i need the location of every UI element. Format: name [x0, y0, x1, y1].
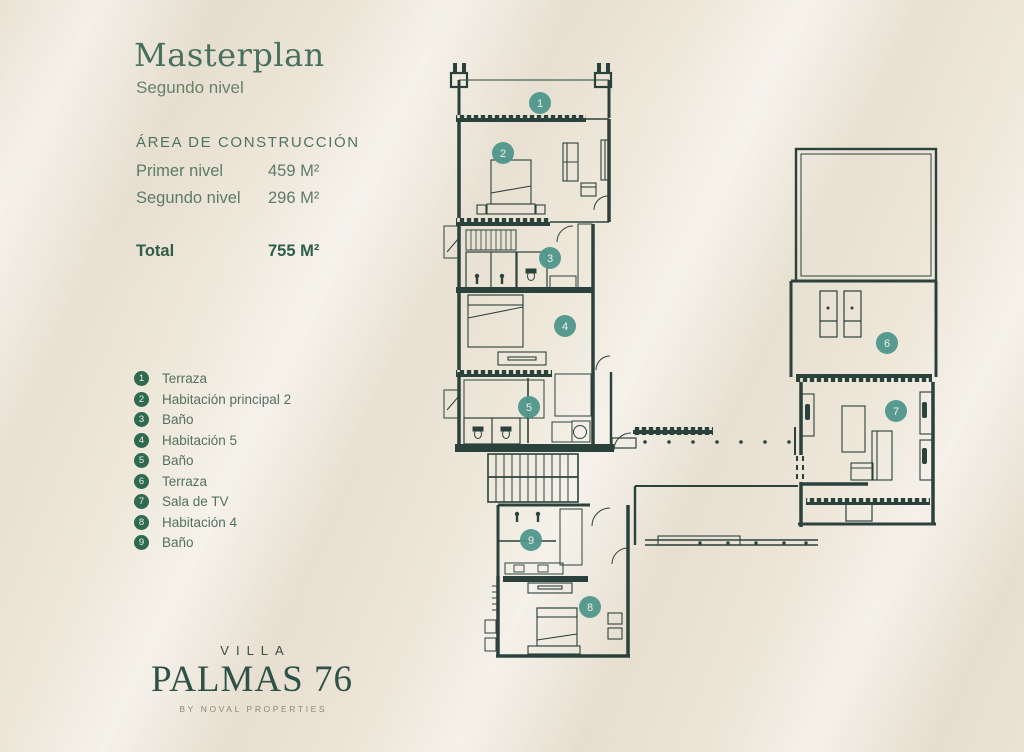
legend-number-badge: 4	[134, 433, 149, 448]
bed-room-2	[477, 160, 545, 214]
legend-item-label: Baño	[162, 535, 194, 550]
room-marker-number: 7	[893, 406, 899, 418]
sofa-room-2	[563, 143, 596, 196]
room-8	[485, 505, 630, 656]
wall-band	[455, 444, 614, 452]
room-marker-number: 9	[528, 535, 534, 547]
legend-number-badge: 3	[134, 412, 149, 427]
construction-row: Segundo nivel296 M²	[136, 189, 356, 216]
legend-item-label: Habitación 4	[162, 515, 237, 530]
construction-heading: ÁREA DE CONSTRUCCIÓN	[136, 134, 360, 151]
legend-item-label: Baño	[162, 453, 194, 468]
legend-item-label: Terraza	[162, 474, 207, 489]
legend-item: 5Baño	[134, 453, 291, 468]
legend-item: 7Sala de TV	[134, 494, 291, 509]
door-arc	[612, 548, 628, 564]
sala-furniture	[802, 392, 932, 480]
staircase	[488, 454, 578, 502]
roof-void	[796, 149, 936, 281]
legend-item: 3Baño	[134, 412, 291, 427]
legend-number-badge: 9	[134, 535, 149, 550]
door-arc	[557, 226, 573, 242]
door-threshold	[846, 504, 872, 521]
total-value: 755 M²	[268, 242, 319, 261]
construction-row-label: Segundo nivel	[136, 189, 268, 216]
page-title: Masterplan	[134, 36, 325, 74]
room-marker-number: 1	[537, 98, 543, 110]
legend-number-badge: 6	[134, 474, 149, 489]
legend-item: 2Habitación principal 2	[134, 392, 291, 407]
legend-item-label: Baño	[162, 412, 194, 427]
room-marker-number: 8	[587, 602, 593, 614]
legend-list: 1Terraza2Habitación principal 23Baño4Hab…	[134, 371, 291, 550]
left-panel: Masterplan Segundo nivel ÁREA DE CONSTRU…	[0, 0, 430, 752]
brand-villa: VILLA	[150, 643, 354, 658]
legend-item-label: Sala de TV	[162, 494, 229, 509]
wall-band	[456, 218, 550, 226]
construction-row-value: 296 M²	[268, 189, 319, 216]
legend-number-badge: 8	[134, 515, 149, 530]
legend-number-badge: 5	[134, 453, 149, 468]
construction-row-label: Primer nivel	[136, 162, 268, 189]
room-marker-number: 6	[884, 338, 890, 350]
door-arc	[594, 196, 608, 210]
construction-rows: Primer nivel459 M²Segundo nivel296 M²	[136, 162, 356, 216]
legend-number-badge: 2	[134, 392, 149, 407]
door-arc	[596, 356, 610, 370]
right-wing	[791, 149, 936, 527]
room-marker-number: 2	[500, 148, 506, 160]
sun-loungers	[820, 291, 861, 337]
page: { "masthead": { "title": "Masterplan", "…	[0, 0, 1024, 752]
brand-byline: BY NOVAL PROPERTIES	[150, 704, 354, 714]
legend-item-label: Terraza	[162, 371, 207, 386]
window-band	[456, 115, 586, 122]
door-arc	[592, 508, 610, 526]
legend-item-label: Habitación 5	[162, 433, 237, 448]
legend-item: 6Terraza	[134, 474, 291, 489]
bath-9	[498, 505, 610, 576]
page-subtitle: Segundo nivel	[136, 78, 244, 98]
brand-name: PALMAS 76	[150, 660, 354, 700]
legend-item: 1Terraza	[134, 371, 291, 386]
wall-band	[456, 287, 593, 293]
construction-row-value: 459 M²	[268, 162, 319, 189]
brand-logo: VILLA PALMAS 76 BY NOVAL PROPERTIES	[150, 643, 354, 714]
construction-total-row: Total 755 M²	[136, 242, 356, 261]
floorplan-drawing: 123456789	[430, 55, 990, 715]
legend-number-badge: 1	[134, 371, 149, 386]
bridge-corridors	[612, 427, 818, 564]
dresser-room-4	[498, 352, 546, 365]
legend-item: 8Habitación 4	[134, 515, 291, 530]
room-marker-number: 4	[562, 321, 568, 333]
legend-number-badge: 7	[134, 494, 149, 509]
bed-room-4	[468, 295, 523, 347]
total-label: Total	[136, 242, 268, 261]
wall-band	[456, 370, 552, 377]
legend-item: 9Baño	[134, 535, 291, 550]
exterior-details	[444, 226, 459, 418]
construction-row: Primer nivel459 M²	[136, 162, 356, 189]
legend-item-label: Habitación principal 2	[162, 392, 291, 407]
window-band	[796, 374, 932, 382]
room-markers: 123456789	[492, 92, 907, 618]
room-marker-number: 5	[526, 402, 532, 414]
room-marker-number: 3	[547, 253, 553, 265]
bath-3	[466, 224, 592, 288]
legend-item: 4Habitación 5	[134, 433, 291, 448]
left-wing	[444, 63, 630, 656]
